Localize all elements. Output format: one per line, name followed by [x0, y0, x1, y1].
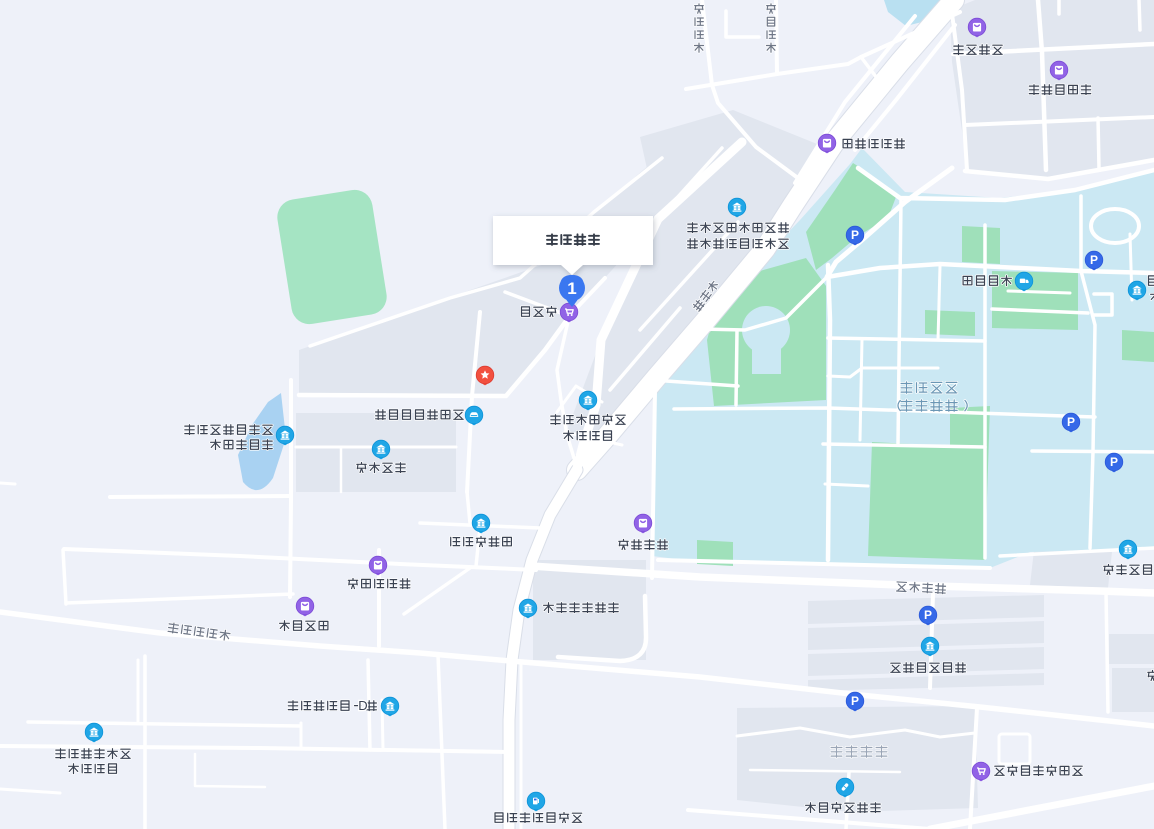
svg-text:P: P — [1090, 253, 1098, 267]
svg-text:P: P — [851, 694, 859, 708]
svg-text:1: 1 — [567, 279, 576, 298]
svg-text:P: P — [851, 228, 859, 242]
svg-text:P: P — [1110, 455, 1118, 469]
svg-text:P: P — [924, 608, 932, 622]
svg-text:D: D — [358, 698, 367, 713]
svg-text:P: P — [1067, 415, 1075, 429]
